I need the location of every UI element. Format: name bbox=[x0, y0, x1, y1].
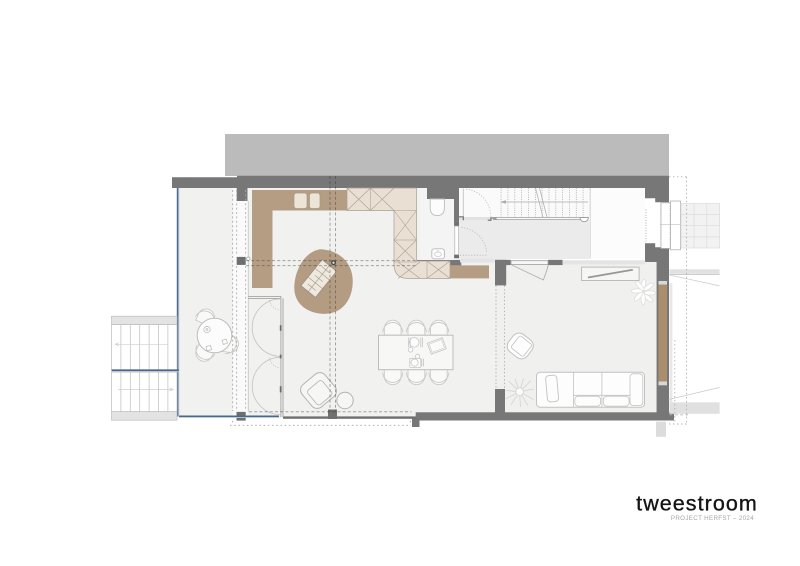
svg-text:tweestroom: tweestroom bbox=[636, 492, 758, 516]
svg-text:PROJECT HERFST – 2024: PROJECT HERFST – 2024 bbox=[671, 515, 754, 522]
